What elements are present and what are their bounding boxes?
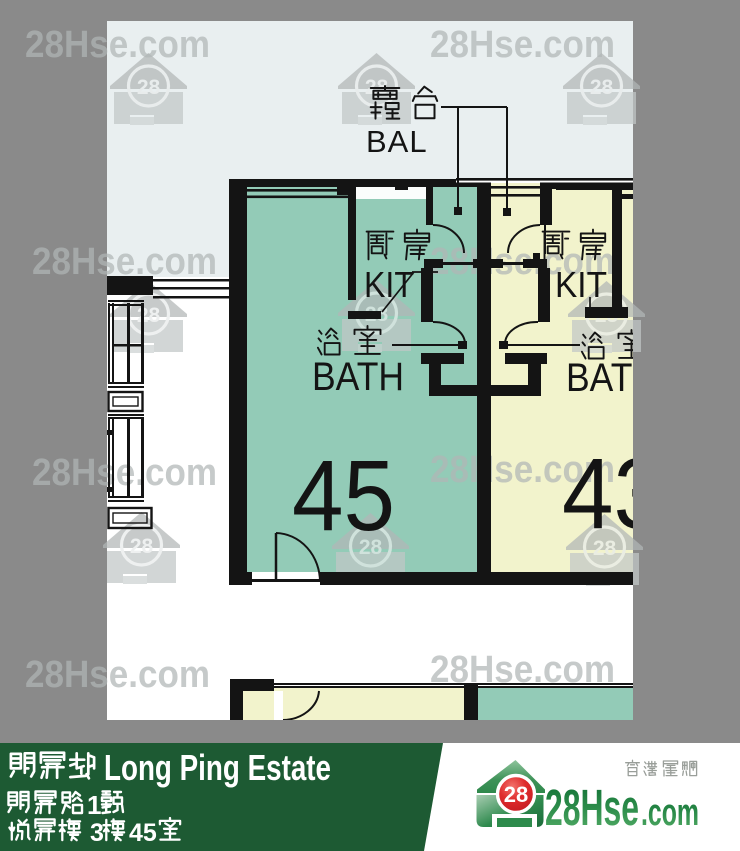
svg-text:28: 28 xyxy=(137,76,161,99)
svg-text:28Hse: 28Hse xyxy=(545,779,639,836)
svg-text:KIT: KIT xyxy=(555,264,607,305)
svg-text:28Hse.com: 28Hse.com xyxy=(25,24,210,66)
svg-text:28: 28 xyxy=(590,76,614,99)
svg-text:28Hse.com: 28Hse.com xyxy=(32,452,217,494)
svg-text:Long Ping Estate: Long Ping Estate xyxy=(104,747,331,788)
svg-text:KIT: KIT xyxy=(364,264,414,305)
svg-text:28: 28 xyxy=(137,304,161,327)
svg-text:28: 28 xyxy=(504,782,528,807)
svg-text:BAL: BAL xyxy=(366,124,428,159)
svg-text:BATH: BATH xyxy=(312,355,404,399)
svg-text:28Hse.com: 28Hse.com xyxy=(25,654,210,696)
svg-text:1: 1 xyxy=(87,790,101,820)
svg-text:.com: .com xyxy=(641,792,699,834)
svg-text:45: 45 xyxy=(129,819,157,847)
svg-text:3: 3 xyxy=(90,819,104,847)
svg-text:28Hse.com: 28Hse.com xyxy=(430,24,615,66)
svg-text:28: 28 xyxy=(130,535,154,558)
svg-text:45: 45 xyxy=(292,440,395,552)
